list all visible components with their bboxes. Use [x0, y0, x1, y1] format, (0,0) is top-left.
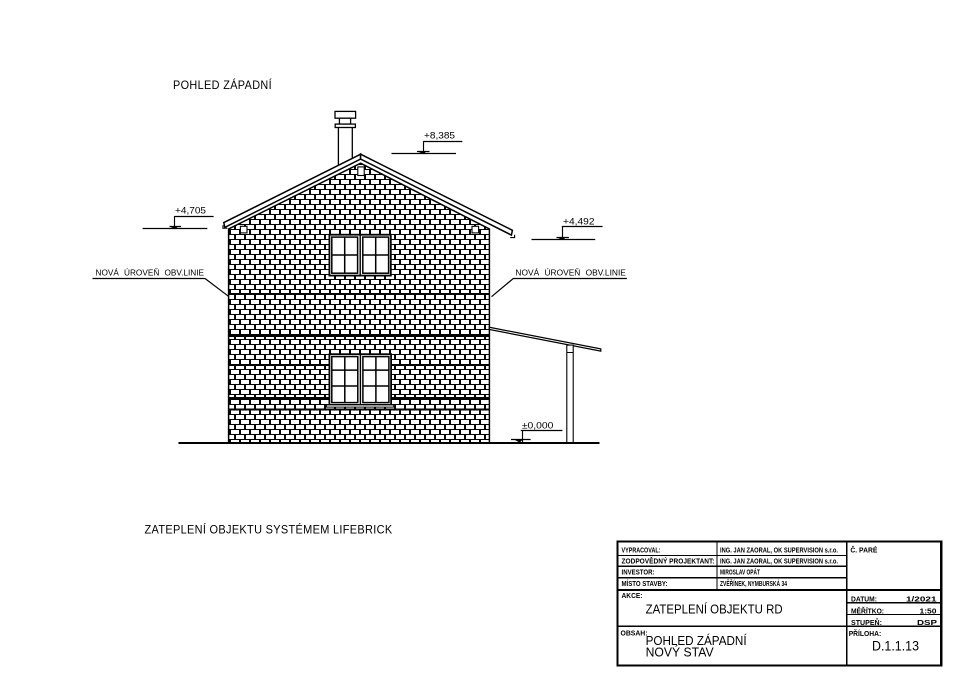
svg-text:+8,385: +8,385	[424, 131, 455, 142]
svg-text:D.1.1.13: D.1.1.13	[872, 638, 919, 654]
svg-text:DATUM:: DATUM:	[851, 595, 877, 604]
svg-text:OBSAH:: OBSAH:	[621, 628, 648, 637]
svg-text:+4,492: +4,492	[563, 216, 595, 227]
svg-text:1:50: 1:50	[920, 607, 937, 616]
svg-text:Č. PARÉ: Č. PARÉ	[850, 545, 877, 554]
svg-text:ING. JAN ZAORAL, OK SUPERVISIO: ING. JAN ZAORAL, OK SUPERVISION s.r.o.	[720, 556, 838, 565]
svg-text:NOVÝ STAV: NOVÝ STAV	[646, 645, 714, 660]
svg-text:DSP: DSP	[917, 618, 937, 627]
svg-text:1/2021: 1/2021	[906, 595, 937, 604]
svg-text:STUPEŇ:: STUPEŇ:	[851, 618, 882, 627]
svg-text:ZATEPLENÍ OBJEKTU RD: ZATEPLENÍ OBJEKTU RD	[646, 601, 783, 616]
svg-text:MIROSLAV OPÁT: MIROSLAV OPÁT	[720, 567, 760, 576]
svg-text:AKCE:: AKCE:	[622, 591, 643, 600]
svg-text:MĚŘÍTKO:: MĚŘÍTKO:	[851, 607, 884, 616]
svg-text:+4,705: +4,705	[175, 206, 206, 217]
svg-text:VYPRACOVAL:: VYPRACOVAL:	[622, 545, 661, 554]
svg-text:MÍSTO STAVBY:: MÍSTO STAVBY:	[622, 579, 668, 588]
svg-text:INVESTOR:: INVESTOR:	[622, 567, 655, 576]
svg-text:POHLED ZÁPADNÍ: POHLED ZÁPADNÍ	[173, 77, 272, 92]
svg-text:NOVÁ ÚROVEŇ OBV.LINIE: NOVÁ ÚROVEŇ OBV.LINIE	[515, 267, 626, 277]
svg-text:ZVĚŘÍNEK, NYMBURSKÁ 34: ZVĚŘÍNEK, NYMBURSKÁ 34	[720, 579, 788, 588]
svg-text:ZODPOVĚDNÝ PROJEKTANT:: ZODPOVĚDNÝ PROJEKTANT:	[622, 556, 715, 565]
svg-text:ING. JAN ZAORAL, OK SUPERVISIO: ING. JAN ZAORAL, OK SUPERVISION s.r.o.	[720, 545, 838, 554]
svg-text:ZATEPLENÍ OBJEKTU SYSTÉMEM LIF: ZATEPLENÍ OBJEKTU SYSTÉMEM LIFEBRICK	[145, 522, 393, 537]
svg-text:NOVÁ ÚROVEŇ OBV.LINIE: NOVÁ ÚROVEŇ OBV.LINIE	[96, 267, 205, 277]
